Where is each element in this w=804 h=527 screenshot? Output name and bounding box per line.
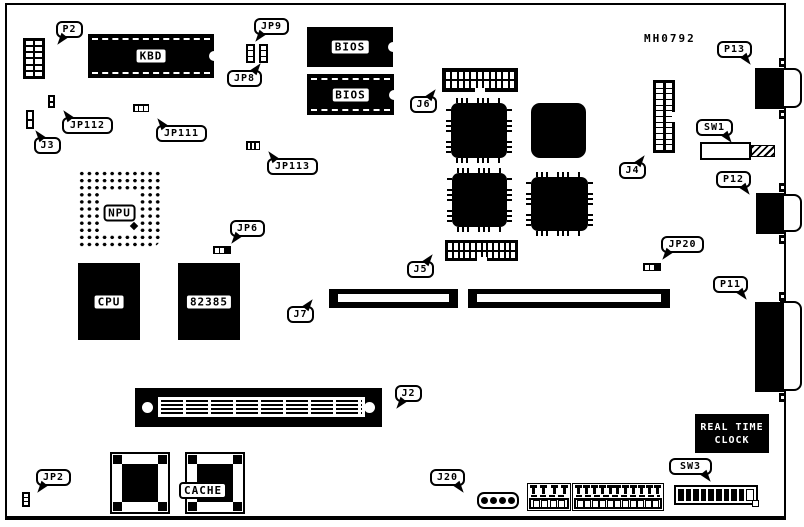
jp112-pin-grid [50, 97, 53, 106]
callout-j6: J6 [410, 96, 437, 113]
j2-contact-rows [158, 397, 365, 417]
sw1-switch [700, 142, 751, 160]
jp9-header [246, 44, 255, 63]
qfp3-pins-bottom [536, 231, 583, 236]
p13-connector [755, 68, 784, 109]
j7-slot-right [468, 289, 670, 308]
callout-sw3-label: SW3 [680, 461, 701, 472]
kbd-chip-label: KBD [135, 48, 168, 65]
jp111-jumper [133, 104, 149, 112]
chip-82385: 82385 [178, 263, 240, 340]
callout-p2: P2 [56, 21, 83, 38]
npu-socket: NPU [78, 170, 161, 248]
motherboard-diagram: P2 KBD JP9 JP8 BIOS BIOS MH0792 J6 [0, 0, 804, 527]
cache-left-die [122, 464, 158, 502]
qfp3-pins-right [588, 182, 593, 226]
callout-j6-label: J6 [416, 99, 430, 110]
p12-connector [756, 193, 784, 234]
callout-j3: J3 [34, 137, 61, 154]
j4-pin-grid [656, 83, 672, 150]
qfp1-pins-right [507, 108, 512, 153]
jp2-pin-grid [24, 494, 28, 505]
jp6-jumper [213, 246, 231, 254]
terminal-large-pins [575, 485, 661, 494]
qfp2-pins-right [507, 178, 512, 222]
bios-chip-bottom: BIOS [307, 74, 394, 115]
callout-p11: P11 [713, 276, 748, 293]
sw3-corner-notch [752, 500, 759, 507]
callout-p12-label: P12 [723, 174, 744, 185]
npu-pin1-marker [130, 222, 138, 230]
bios-chip-top: BIOS [307, 27, 393, 67]
terminal-block-small [527, 483, 571, 511]
plcc-corner [188, 455, 197, 464]
rtc-label-line2: CLOCK [714, 434, 749, 447]
callout-j4: J4 [619, 162, 646, 179]
callout-sw1: SW1 [696, 119, 733, 136]
p2-connector [23, 38, 45, 79]
callout-jp20-label: JP20 [668, 239, 696, 250]
callout-jp8-label: JP8 [234, 73, 255, 84]
callout-jp6: JP6 [230, 220, 265, 237]
jp113-pin-grid [248, 143, 259, 149]
callout-j5: J5 [407, 261, 434, 278]
callout-j20-label: J20 [437, 472, 458, 483]
cpu-chip: CPU [78, 263, 140, 340]
callout-jp111-label: JP111 [164, 128, 199, 139]
terminal-large-dashes [576, 495, 660, 497]
terminal-block-large [572, 483, 664, 511]
callout-jp113-label: JP113 [275, 161, 310, 172]
sw1-actuator [751, 145, 775, 157]
j5-notch [477, 257, 487, 262]
callout-jp112-label: JP112 [70, 120, 105, 131]
j4-notch [672, 112, 676, 122]
jp20-jumper [643, 263, 661, 271]
callout-sw3: SW3 [669, 458, 712, 475]
qfp-chip-3 [526, 172, 593, 236]
j4-header [653, 80, 675, 153]
j6-notch [475, 88, 485, 93]
p13-tab-bottom [779, 110, 786, 119]
plcc-corner [158, 455, 167, 464]
cache-socket-left [110, 452, 170, 514]
callout-p12: P12 [716, 171, 751, 188]
plcc-corner [233, 502, 242, 511]
qfp-chip-2 [447, 168, 512, 232]
p11-connector [755, 302, 784, 392]
jp8-header [259, 44, 268, 63]
qfp2-die [452, 173, 507, 227]
board-code-text: MH0792 [644, 32, 696, 45]
callout-jp6-label: JP6 [237, 223, 258, 234]
bios-bottom-notch [389, 90, 399, 100]
qfp3-die [531, 177, 588, 231]
callout-j5-label: J5 [413, 264, 427, 275]
jp9-pin-grid [248, 46, 253, 61]
callout-jp9-label: JP9 [261, 21, 282, 32]
jp2-jumper [22, 492, 30, 507]
bios-top-notch [388, 42, 398, 52]
j3-connector [26, 110, 34, 129]
terminal-small-cells [529, 498, 569, 509]
sw3-switch-cells [678, 489, 754, 501]
callout-j4-label: J4 [625, 165, 639, 176]
cpu-label: CPU [93, 293, 126, 310]
j20-connector [477, 492, 519, 509]
rtc-block: REAL TIME CLOCK [695, 414, 769, 453]
callout-jp2: JP2 [36, 469, 71, 486]
qfp1-die [451, 103, 507, 158]
plcc-corner [188, 502, 197, 511]
terminal-large-cells [574, 498, 662, 509]
cache-label: CACHE [179, 482, 227, 499]
jp113-jumper [246, 141, 260, 150]
p2-pin-grid [26, 41, 42, 76]
callout-p13: P13 [717, 41, 752, 58]
npu-socket-center: NPU [99, 191, 140, 235]
sw3-dip-switch [674, 485, 758, 505]
kbd-chip-notch [209, 51, 219, 61]
callout-jp111: JP111 [156, 125, 207, 142]
bios-bottom-label: BIOS [330, 86, 371, 103]
j7-slot-left [329, 289, 458, 308]
j2-hole-right [364, 402, 375, 413]
plcc-corner [233, 455, 242, 464]
callout-p2-label: P2 [62, 24, 76, 35]
j5-pin-grid [448, 243, 515, 258]
callout-jp9: JP9 [254, 18, 289, 35]
j2-socket [135, 388, 382, 427]
p12-tab-bottom [779, 235, 786, 244]
jp8-pin-grid [261, 46, 266, 61]
callout-jp20: JP20 [661, 236, 704, 253]
p11-tab-top [779, 292, 786, 301]
callout-j2-label: J2 [401, 388, 415, 399]
kbd-chip: KBD [88, 34, 214, 78]
terminal-small-pins [530, 485, 568, 494]
callout-j20: J20 [430, 469, 465, 486]
plcc-corner [113, 455, 122, 464]
callout-p11-label: P11 [720, 279, 741, 290]
callout-j3-label: J3 [40, 140, 54, 151]
qfp2-pins-bottom [457, 227, 502, 232]
j6-pin-grid [446, 72, 514, 88]
plcc-corner [113, 502, 122, 511]
jp112-pin [48, 95, 55, 108]
j5-header [445, 240, 518, 261]
chip-82385-label: 82385 [185, 293, 233, 310]
jp111-pin-grid [135, 106, 148, 111]
bios-top-label: BIOS [330, 39, 371, 56]
npu-label: NPU [103, 205, 136, 222]
callout-sw1-label: SW1 [704, 122, 725, 133]
callout-jp113: JP113 [267, 158, 318, 175]
p12-tab-top [779, 183, 786, 192]
callout-p13-label: P13 [724, 44, 745, 55]
rtc-label-line1: REAL TIME [700, 421, 763, 434]
callout-jp8: JP8 [227, 70, 262, 87]
plcc-corner [158, 502, 167, 511]
j20-pin-row [479, 497, 517, 504]
callout-jp2-label: JP2 [43, 472, 64, 483]
callout-jp112: JP112 [62, 117, 113, 134]
callout-j7: J7 [287, 306, 314, 323]
j3-pin-grid [28, 112, 32, 127]
chip-plain [531, 103, 586, 158]
j2-hole-left [142, 402, 153, 413]
qfp-chip-1 [446, 98, 512, 163]
p13-tab-top [779, 58, 786, 67]
callout-j2: J2 [395, 385, 422, 402]
callout-j7-label: J7 [293, 309, 307, 320]
qfp1-pins-bottom [456, 158, 502, 163]
jp6-pin-grid [215, 248, 230, 253]
j6-header [442, 68, 518, 92]
jp20-pin-grid [645, 265, 660, 270]
terminal-small-dashes [531, 495, 567, 497]
p11-tab-bottom [779, 393, 786, 402]
